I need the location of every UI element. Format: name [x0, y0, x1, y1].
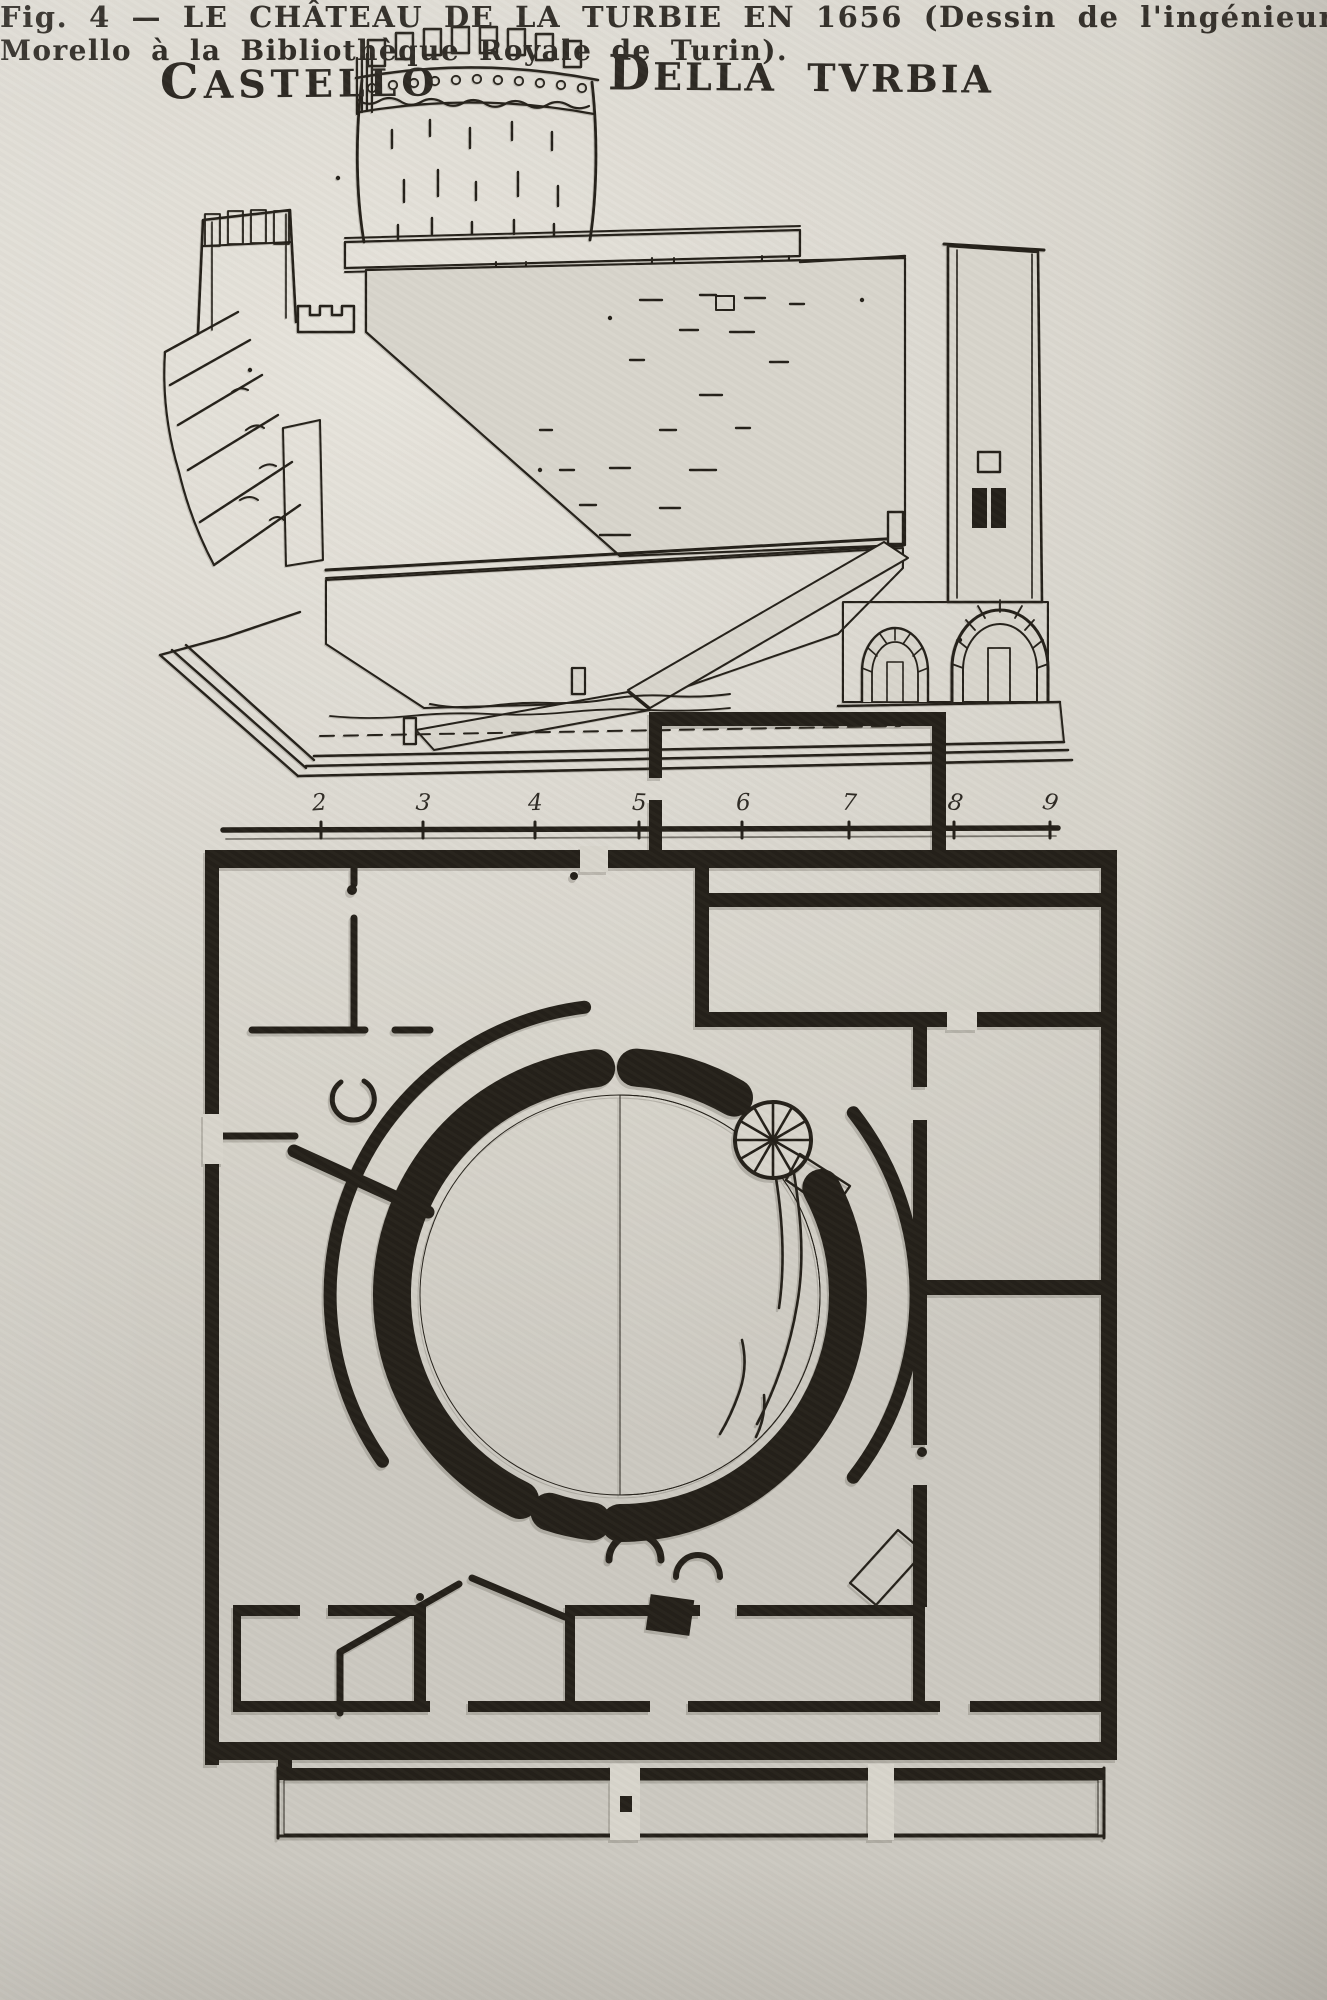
caption-line-1: Fig. 4 — LE CHÂTEAU DE LA TURBIE EN 1656… — [0, 0, 1327, 34]
curtain-wall — [366, 256, 905, 556]
plan-upper-rooms — [219, 862, 1101, 1607]
arched-gateways — [838, 600, 1060, 706]
plan-glacis-stair-band — [278, 1758, 1104, 1840]
castle-elevation-drawing — [160, 27, 1072, 776]
caption-line-2: Morello à la Bibliothèque Royale de Turi… — [0, 34, 1327, 67]
scale-tick-label: 6 — [735, 790, 751, 817]
book-page: CASTELLO DELLA TVRBIA 2 3 4 5 6 7 8 9 Fi… — [0, 0, 1327, 2000]
scale-tick-label: 4 — [528, 790, 544, 816]
right-tower — [944, 244, 1044, 602]
figure-caption: Fig. 4 — LE CHÂTEAU DE LA TURBIE EN 1656… — [0, 0, 1327, 67]
scale-tick-label: 7 — [841, 790, 857, 817]
scale-tick-label: 3 — [415, 789, 432, 816]
scale-tick-label: 5 — [632, 790, 648, 816]
plan-round-donjon — [330, 1007, 916, 1523]
castle-plan-drawing — [203, 712, 1117, 1840]
scale-tick-label: 2 — [311, 790, 327, 817]
left-tower-and-ruins — [164, 210, 354, 566]
plan-well-circle — [332, 1081, 374, 1120]
engraving-artwork — [0, 0, 1327, 2000]
